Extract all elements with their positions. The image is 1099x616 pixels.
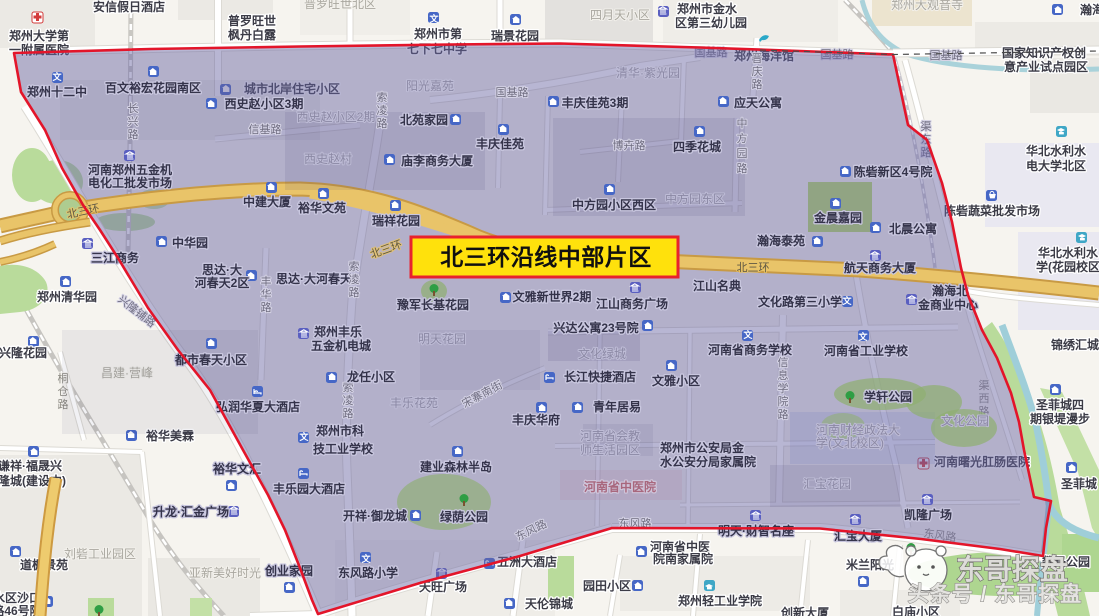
- svg-text:中华园: 中华园: [172, 235, 208, 250]
- svg-text:晋: 晋: [752, 52, 763, 65]
- svg-text:技工业学校: 技工业学校: [313, 441, 374, 456]
- svg-text:博卉路: 博卉路: [613, 139, 646, 152]
- svg-text:文化路第三小学: 文化路第三小学: [758, 294, 842, 309]
- svg-text:百文裕宏花园南区: 百文裕宏花园南区: [105, 80, 201, 95]
- svg-text:郑州丰乐: 郑州丰乐: [314, 324, 362, 339]
- svg-text:方: 方: [737, 131, 748, 145]
- svg-text:郑州市金水: 郑州市金水: [677, 1, 738, 16]
- svg-text:清华·紫光园: 清华·紫光园: [616, 66, 680, 80]
- svg-text:郑州市第: 郑州市第: [414, 26, 462, 41]
- svg-text:瀚海泰苑: 瀚海泰苑: [757, 233, 805, 248]
- svg-text:文: 文: [298, 431, 309, 442]
- svg-text:中建大厦: 中建大厦: [243, 194, 292, 209]
- svg-text:河南省中医院: 河南省中医院: [583, 479, 656, 494]
- svg-text:路: 路: [778, 408, 789, 421]
- svg-text:西史赵小区2期: 西史赵小区2期: [297, 110, 376, 124]
- svg-text:北晨公寓: 北晨公寓: [889, 221, 937, 236]
- svg-text:弘润华夏大酒店: 弘润华夏大酒店: [216, 399, 300, 414]
- svg-text:河南财经政法大: 河南财经政法大: [816, 422, 900, 437]
- svg-text:丰乐园大酒店: 丰乐园大酒店: [273, 481, 345, 496]
- svg-text:庙李商务大厦: 庙李商务大厦: [401, 153, 474, 168]
- svg-text:建业森林半岛: 建业森林半岛: [419, 459, 492, 474]
- svg-text:创业家园: 创业家园: [264, 563, 313, 578]
- svg-text:谦祥·福晟兴: 谦祥·福晟兴: [0, 458, 62, 473]
- svg-text:兴: 兴: [128, 115, 139, 128]
- svg-text:文化绿城: 文化绿城: [578, 346, 626, 361]
- svg-text:郑州十二中: 郑州十二中: [27, 84, 87, 99]
- svg-text:长: 长: [128, 102, 139, 115]
- svg-text:西史赵村: 西史赵村: [304, 152, 352, 166]
- svg-text:电大学北区: 电大学北区: [1026, 158, 1086, 173]
- svg-text:文: 文: [857, 331, 868, 342]
- svg-text:天伦锦城: 天伦锦城: [525, 596, 573, 611]
- svg-text:索: 索: [349, 259, 360, 273]
- svg-text:华北水利水: 华北水利水: [1038, 245, 1099, 260]
- svg-text:东风路小学: 东风路小学: [338, 565, 398, 580]
- svg-text:学(花园校区: 学(花园校区: [1036, 259, 1099, 274]
- svg-text:陈砦蔬菜批发市场: 陈砦蔬菜批发市场: [944, 203, 1040, 218]
- svg-text:北三环沿线中部片区: 北三环沿线中部片区: [440, 244, 652, 270]
- svg-text:河南郑州五金机: 河南郑州五金机: [87, 162, 172, 177]
- svg-text:华北水利水: 华北水利水: [1026, 143, 1087, 158]
- svg-text:丰庆佳苑3期: 丰庆佳苑3期: [562, 95, 629, 110]
- svg-text:丰乐花苑: 丰乐花苑: [390, 395, 438, 410]
- svg-text:瑞祥花园: 瑞祥花园: [372, 213, 420, 228]
- svg-text:河南省工业学校: 河南省工业学校: [823, 343, 909, 358]
- svg-text:开祥·御龙城: 开祥·御龙城: [343, 508, 407, 523]
- svg-text:普罗旺世: 普罗旺世: [228, 13, 276, 28]
- svg-text:郑州市公安局金: 郑州市公安局金: [660, 440, 745, 455]
- svg-text:郑州清华园: 郑州清华园: [37, 289, 97, 304]
- svg-text:豫军长基花园: 豫军长基花园: [397, 297, 469, 312]
- svg-text:国基路: 国基路: [930, 49, 963, 62]
- svg-text:瀚海: 瀚海: [1080, 2, 1099, 17]
- svg-text:路: 路: [737, 162, 748, 175]
- svg-text:文雅小区: 文雅小区: [652, 373, 700, 388]
- svg-text:陈砦新区4号院: 陈砦新区4号院: [854, 164, 933, 179]
- svg-text:园田小区: 园田小区: [583, 578, 631, 593]
- svg-text:路: 路: [349, 286, 360, 299]
- svg-text:航天商务大厦: 航天商务大厦: [844, 260, 917, 275]
- svg-text:北苑家园: 北苑家园: [400, 112, 448, 127]
- svg-text:水公安分局家属院: 水公安分局家属院: [660, 454, 756, 469]
- svg-text:院南家属院: 院南家属院: [653, 551, 713, 566]
- svg-text:国基路: 国基路: [496, 86, 529, 99]
- svg-text:创新大厦: 创新大厦: [780, 605, 830, 616]
- svg-text:龙任小区: 龙任小区: [347, 369, 395, 384]
- svg-text:凌: 凌: [349, 272, 360, 286]
- svg-text:中: 中: [737, 117, 748, 130]
- svg-text:路: 路: [128, 128, 139, 141]
- svg-text:头条号 / 东哥探盘: 头条号 / 东哥探盘: [908, 582, 1083, 606]
- svg-text:息: 息: [778, 368, 789, 382]
- svg-text:东哥探盘: 东哥探盘: [956, 553, 1068, 585]
- svg-text:郑州大学第: 郑州大学第: [9, 28, 69, 43]
- svg-text:枫丹白露: 枫丹白露: [228, 27, 277, 42]
- svg-text:文: 文: [841, 295, 852, 306]
- svg-text:路: 路: [261, 301, 272, 314]
- svg-text:文雅新世界2期: 文雅新世界2期: [513, 289, 592, 304]
- svg-text:五金机电城: 五金机电城: [311, 338, 371, 353]
- svg-text:路: 路: [343, 407, 354, 420]
- svg-text:意产业试点园区: 意产业试点园区: [1004, 59, 1088, 74]
- svg-text:江山名典: 江山名典: [693, 278, 741, 293]
- svg-text:西史赵小区3期: 西史赵小区3期: [225, 96, 304, 111]
- svg-text:刘砦工业园区: 刘砦工业园区: [64, 546, 136, 561]
- svg-text:明天花园: 明天花园: [418, 331, 466, 346]
- svg-text:瑞景花园: 瑞景花园: [491, 28, 539, 43]
- svg-text:华: 华: [261, 287, 272, 301]
- svg-text:圣菲城: 圣菲城: [1060, 476, 1097, 491]
- svg-text:安信假日酒店: 安信假日酒店: [93, 0, 165, 14]
- svg-text:区第三幼儿园: 区第三幼儿园: [675, 15, 747, 30]
- svg-text:青年居易: 青年居易: [593, 399, 641, 414]
- svg-text:四季花城: 四季花城: [673, 139, 721, 154]
- svg-text:园: 园: [737, 147, 748, 160]
- svg-text:索: 索: [377, 90, 388, 104]
- svg-text:渠: 渠: [921, 120, 932, 133]
- svg-text:庆: 庆: [752, 64, 763, 78]
- svg-text:丰: 丰: [261, 275, 272, 288]
- svg-text:北三环: 北三环: [737, 261, 770, 274]
- svg-text:圣菲城四: 圣菲城四: [1035, 397, 1084, 412]
- svg-text:亚新美好时光: 亚新美好时光: [189, 565, 261, 580]
- svg-text:长江快捷酒店: 长江快捷酒店: [564, 369, 636, 384]
- svg-text:应天公寓: 应天公寓: [734, 95, 782, 110]
- svg-text:锦绣汇城: 锦绣汇城: [1051, 337, 1099, 352]
- svg-text:思达·大河春天: 思达·大河春天: [276, 271, 353, 286]
- svg-text:丰庆华府: 丰庆华府: [512, 412, 560, 427]
- svg-text:文: 文: [428, 13, 439, 24]
- svg-text:文: 文: [742, 329, 753, 340]
- svg-text:兴达公寓23号院: 兴达公寓23号院: [553, 320, 638, 335]
- svg-text:郑州轻工业学院: 郑州轻工业学院: [678, 593, 762, 608]
- svg-text:普罗旺世北区: 普罗旺世北区: [304, 0, 376, 11]
- svg-text:文化公园: 文化公园: [941, 413, 989, 428]
- svg-text:路: 路: [752, 78, 763, 91]
- svg-text:学: 学: [778, 381, 789, 395]
- svg-text:中方园东区: 中方园东区: [665, 191, 725, 206]
- svg-text:河南省会教: 河南省会教: [580, 428, 640, 443]
- svg-text:郑州大观音寺: 郑州大观音寺: [891, 0, 963, 12]
- svg-text:瀚海北: 瀚海北: [932, 283, 968, 298]
- svg-text:师生活园区: 师生活园区: [580, 443, 640, 457]
- svg-text:文: 文: [51, 71, 62, 82]
- svg-text:四月天小区: 四月天小区: [590, 8, 650, 22]
- svg-text:思达·大: 思达·大: [202, 262, 242, 277]
- svg-text:汇宝花园: 汇宝花园: [803, 476, 851, 491]
- svg-text:明天·财智名座: 明天·财智名座: [718, 523, 794, 538]
- svg-text:阳光嘉苑: 阳光嘉苑: [406, 79, 454, 93]
- svg-text:裕华文苑: 裕华文苑: [297, 200, 346, 215]
- svg-text:中方园小区西区: 中方园小区西区: [572, 197, 656, 212]
- svg-text:绿荫公园: 绿荫公园: [440, 509, 488, 524]
- svg-text:金晨嘉园: 金晨嘉园: [813, 210, 862, 225]
- svg-text:学(文北校区): 学(文北校区): [816, 435, 884, 450]
- svg-text:凯隆广场: 凯隆广场: [904, 507, 952, 522]
- svg-text:河南省商务学校: 河南省商务学校: [707, 342, 793, 357]
- svg-text:河春天2区: 河春天2区: [194, 275, 250, 290]
- svg-text:丰庆佳苑: 丰庆佳苑: [476, 136, 524, 151]
- svg-text:学轩公园: 学轩公园: [864, 389, 912, 404]
- svg-text:信: 信: [778, 356, 789, 369]
- svg-text:电化工批发市场: 电化工批发市场: [88, 175, 172, 190]
- svg-text:凌: 凌: [377, 103, 388, 117]
- svg-text:院: 院: [778, 394, 789, 408]
- svg-text:升龙·汇金广场: 升龙·汇金广场: [153, 504, 229, 519]
- svg-text:信基路: 信基路: [249, 123, 282, 136]
- svg-text:路: 路: [377, 117, 388, 130]
- svg-text:兴隆花园: 兴隆花园: [0, 345, 47, 360]
- svg-text:凌: 凌: [343, 393, 354, 407]
- svg-text:文: 文: [360, 553, 371, 564]
- svg-text:江山商务广场: 江山商务广场: [596, 296, 668, 311]
- svg-text:郑州市科: 郑州市科: [316, 423, 364, 438]
- svg-text:期银堤漫步: 期银堤漫步: [1030, 411, 1090, 426]
